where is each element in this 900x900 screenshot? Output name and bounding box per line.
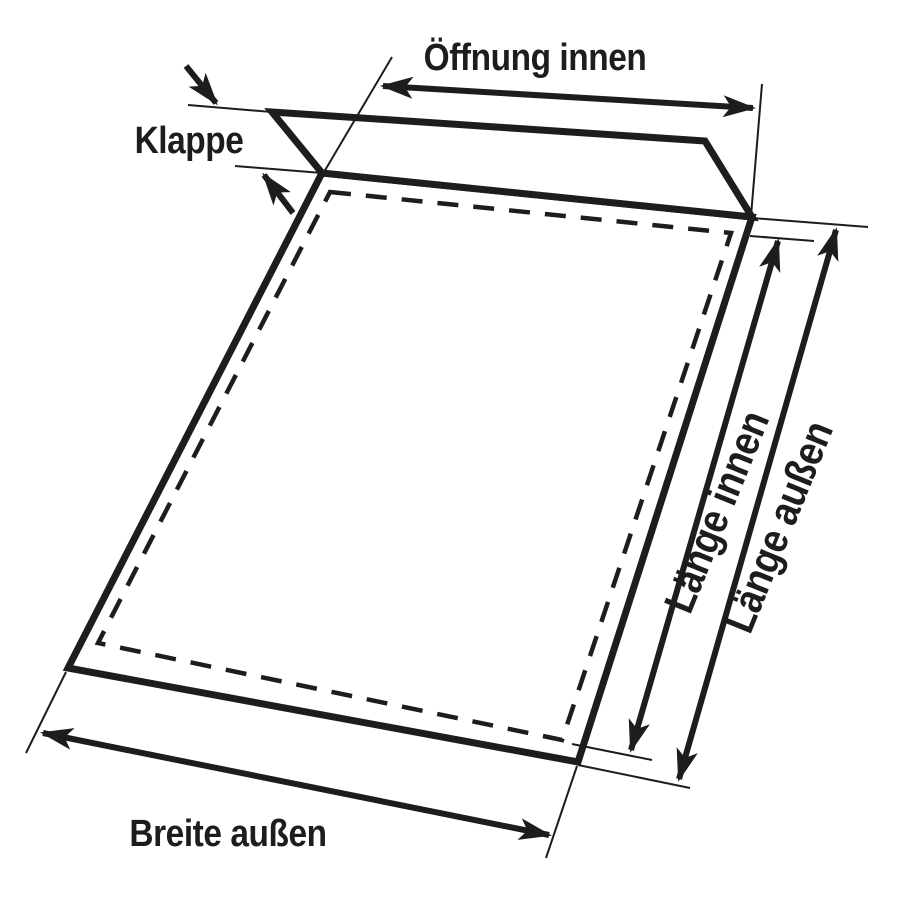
envelope-dimension-diagram: Klappe Öffnung innen Länge innen Länge a… [0,0,900,900]
oeffnung-innen-arrow [383,86,753,108]
diagram-canvas: Klappe Öffnung innen Länge innen Länge a… [0,0,900,900]
extension-line-envelope-top [235,166,322,173]
extension-line-width-right [546,766,577,858]
extension-line-width-left [26,672,66,753]
extension-line-length-inner-top [750,236,814,241]
extension-line-length-outer-bottom [578,765,690,788]
oeffnung-innen-label: Öffnung innen [424,36,647,78]
breite-aussen-label: Breite außen [129,812,326,854]
klappe-label: Klappe [135,119,244,161]
klappe-arrow-upper [186,66,216,103]
extension-line-length-outer-top [752,218,868,227]
envelope-body [68,173,752,762]
klappe-arrow-lower [264,175,293,213]
extension-line-flap-top [188,105,272,112]
extension-line-opening-right [751,84,762,216]
